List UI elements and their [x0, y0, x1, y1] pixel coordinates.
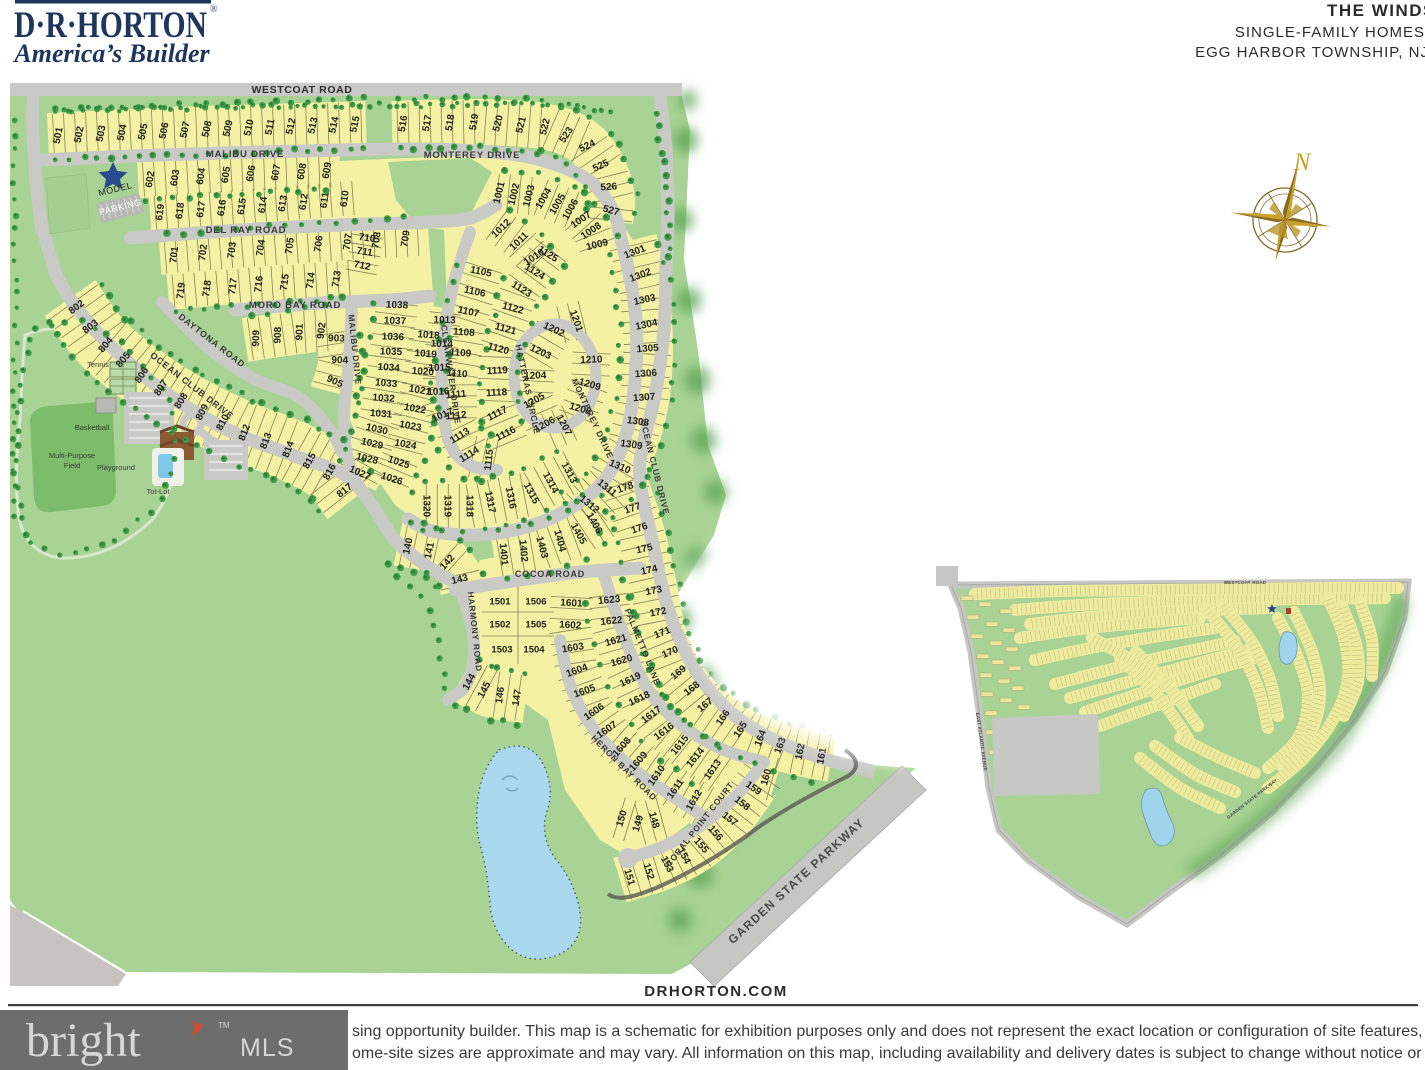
svg-text:904: 904 — [331, 355, 348, 366]
svg-text:701: 701 — [168, 245, 181, 263]
svg-text:SINGLE-FAMILY HOMES: SINGLE-FAMILY HOMES — [1235, 24, 1425, 41]
svg-text:616: 616 — [216, 198, 229, 216]
svg-text:714: 714 — [305, 271, 318, 289]
svg-text:1502: 1502 — [489, 620, 510, 631]
svg-text:THE WINDS: THE WINDS — [1327, 1, 1425, 20]
svg-text:1320: 1320 — [421, 495, 432, 518]
svg-text:1503: 1503 — [491, 645, 512, 656]
svg-text:N: N — [1293, 149, 1312, 176]
svg-text:147: 147 — [511, 688, 524, 706]
svg-text:EGG HARBOR TOWNSHIP, NJ: EGG HARBOR TOWNSHIP, NJ — [1195, 44, 1425, 61]
svg-text:1601: 1601 — [560, 598, 583, 610]
svg-text:610: 610 — [339, 189, 352, 207]
svg-text:618: 618 — [174, 201, 187, 219]
svg-text:1210: 1210 — [580, 354, 603, 366]
svg-text:Playground: Playground — [97, 463, 135, 472]
svg-text:1401: 1401 — [497, 543, 510, 567]
svg-text:146: 146 — [494, 686, 507, 704]
svg-text:619: 619 — [154, 203, 167, 221]
svg-text:1037: 1037 — [384, 316, 407, 328]
svg-text:1035: 1035 — [380, 346, 403, 358]
svg-text:1118: 1118 — [486, 387, 508, 399]
svg-text:703: 703 — [226, 241, 239, 259]
svg-text:MLS: MLS — [240, 1034, 294, 1062]
svg-text:1108: 1108 — [453, 326, 476, 339]
svg-text:611: 611 — [319, 191, 332, 209]
svg-text:1033: 1033 — [375, 378, 398, 391]
svg-text:DEL RAY ROAD: DEL RAY ROAD — [206, 225, 287, 236]
svg-text:1119: 1119 — [486, 365, 508, 377]
svg-text:908: 908 — [273, 326, 285, 343]
svg-text:717: 717 — [227, 277, 240, 295]
svg-text:1115: 1115 — [483, 448, 496, 471]
svg-text:1622: 1622 — [600, 615, 624, 628]
svg-text:MORO BAY ROAD: MORO BAY ROAD — [249, 300, 341, 311]
svg-text:®: ® — [210, 4, 218, 15]
svg-text:707: 707 — [342, 232, 355, 250]
svg-text:Multi-Purpose: Multi-Purpose — [49, 451, 95, 460]
svg-text:526: 526 — [600, 181, 618, 193]
svg-text:715: 715 — [279, 273, 292, 291]
svg-text:America’s Builder: America’s Builder — [12, 39, 210, 68]
svg-text:1602: 1602 — [559, 620, 582, 632]
svg-text:705: 705 — [284, 236, 297, 254]
svg-text:716: 716 — [253, 275, 266, 293]
svg-text:706: 706 — [313, 234, 326, 252]
svg-text:sing opportunity builder. This: sing opportunity builder. This map is a … — [352, 1023, 1425, 1040]
svg-text:Basketball: Basketball — [75, 423, 110, 432]
svg-text:MALIBU DRIVE: MALIBU DRIVE — [206, 149, 284, 160]
svg-text:1306: 1306 — [634, 368, 657, 381]
svg-text:1038: 1038 — [386, 300, 409, 312]
svg-text:WESTCOAT ROAD: WESTCOAT ROAD — [252, 84, 353, 96]
svg-text:ome-site sizes are approximate: ome-site sizes are approximate and may v… — [352, 1045, 1425, 1062]
svg-text:Field: Field — [64, 461, 80, 470]
svg-text:617: 617 — [195, 200, 208, 218]
svg-text:1504: 1504 — [523, 645, 545, 656]
svg-text:1506: 1506 — [525, 597, 546, 608]
svg-text:1319: 1319 — [442, 495, 453, 518]
svg-text:1307: 1307 — [633, 392, 656, 405]
svg-text:1034: 1034 — [377, 362, 400, 375]
svg-text:WESTCOAT ROAD: WESTCOAT ROAD — [1224, 580, 1267, 585]
svg-text:Tot-Lot: Tot-Lot — [147, 487, 171, 496]
svg-text:MONTEREY DRIVE: MONTEREY DRIVE — [424, 150, 521, 161]
svg-text:903: 903 — [328, 333, 345, 344]
svg-text:1032: 1032 — [372, 392, 395, 405]
svg-text:1031: 1031 — [370, 408, 393, 421]
svg-text:1623: 1623 — [598, 594, 622, 607]
svg-text:702: 702 — [197, 243, 210, 261]
svg-text:1318: 1318 — [464, 495, 475, 518]
svg-text:1036: 1036 — [382, 331, 405, 343]
svg-text:704: 704 — [255, 238, 268, 256]
svg-text:COCOA ROAD: COCOA ROAD — [515, 569, 585, 579]
svg-text:1505: 1505 — [525, 620, 547, 631]
svg-text:1402: 1402 — [517, 539, 530, 563]
svg-text:612: 612 — [298, 192, 311, 210]
svg-text:719: 719 — [175, 281, 188, 299]
svg-text:901: 901 — [294, 323, 306, 340]
svg-text:1305: 1305 — [636, 343, 659, 356]
svg-text:1501: 1501 — [489, 597, 511, 608]
svg-text:bright: bright — [26, 1014, 141, 1067]
svg-text:909: 909 — [251, 329, 263, 346]
svg-text:713: 713 — [331, 269, 344, 287]
svg-text:718: 718 — [201, 279, 214, 297]
svg-text:Tennis: Tennis — [87, 360, 109, 369]
svg-text:902: 902 — [316, 321, 329, 339]
svg-text:1019: 1019 — [414, 348, 437, 361]
svg-text:TM: TM — [218, 1021, 230, 1030]
svg-text:DRHORTON.COM: DRHORTON.COM — [644, 983, 788, 1000]
